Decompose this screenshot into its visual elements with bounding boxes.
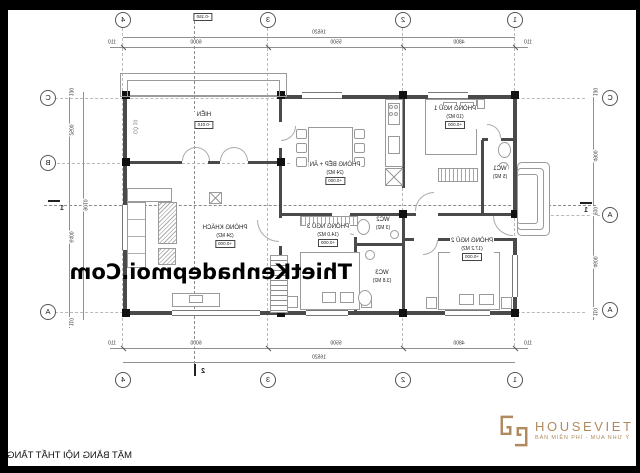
chair [296,143,307,153]
door-arc [415,192,434,211]
section-mark [580,202,592,204]
grid-bubble-col: 1 [507,372,523,388]
room-name: PHÒNG KHÁCH [203,225,248,231]
dim-seg: 130 [68,87,73,97]
column-marker [511,91,519,99]
grid-bubble-col: 2 [395,12,411,28]
sofa [127,188,172,202]
plan-drawing-mirrored: 16520 110 4800 5500 6000 110 110 4800 55… [0,0,640,473]
room-level: -0.010 [195,121,214,129]
column-marker [399,91,407,99]
wall [279,95,282,122]
dim-seg: 110 [592,307,597,317]
wall [501,138,513,141]
floor-plan-sheet: 16520 110 4800 5500 6000 110 110 4800 55… [0,0,640,473]
nightstand [501,297,512,309]
dim-seg: 110 [523,41,533,46]
room-area: (10 M2) [434,114,476,120]
room-name: PHÒNG NGỦ 3 [307,224,349,230]
grid-bubble-col: 4 [115,12,131,28]
section-label: 2 [201,368,205,375]
dim-seg: 6000 [189,342,202,347]
burner [389,105,393,109]
wardrobe [438,168,478,182]
dim-seg: 5500 [329,41,342,46]
nightstand [477,99,485,109]
sofa [127,202,146,268]
grid-bubble-row: C [40,90,56,106]
chair [296,157,307,167]
burner [389,112,393,116]
grid-bubble-col: 1 [507,12,523,28]
room-label-bed2: PHÒNG NGỦ 2 (17.2 M2) +0.000 [450,238,494,261]
room-area: (34 M2) [203,233,248,239]
grid-bubble-row: A [602,207,618,223]
wall [482,138,488,141]
toilet [358,290,372,306]
pillow [459,294,474,305]
dim-line [123,362,515,363]
wall [402,215,405,315]
window [302,92,342,99]
houseviet-logo-icon [498,414,530,448]
houseviet-logo: HOUSEVIET BẢN MIỄN PHÍ - MUA NHƯ Ý [498,414,634,448]
dim-seg: 110 [523,342,533,347]
chair [354,129,365,139]
dim-line [593,88,594,320]
door-arc [423,240,438,255]
room-level: +0.000 [325,177,345,185]
grid-bubble-col: 3 [260,12,276,28]
grid-bubble-col: 4 [115,372,131,388]
chair [354,143,365,153]
column-marker [122,309,130,317]
section-mark [194,364,196,376]
coffee-table [158,202,177,244]
dim-seg: 110 [107,342,117,347]
entry-steps [517,174,538,224]
wash-basin [390,230,399,239]
canopy-outline [127,80,280,97]
window [445,310,490,316]
room-label-living: PHÒNG KHÁCH (34 M2) +0.000 [202,225,249,248]
frame-left [0,0,8,473]
kitchen-sink [388,136,400,154]
room-area: (3.8 M2) [373,278,392,284]
dim-seg: 4800 [452,41,465,46]
window [172,310,260,316]
column-marker [277,158,285,166]
column-marker [399,210,407,218]
dim-seg: 4900 [592,149,597,162]
room-label-hien: HIÊN -0.010 [194,112,215,129]
tv [189,295,203,303]
dim-seg: 5500 [329,342,342,347]
column-marker [122,158,130,166]
room-area: (24 M2) [310,170,361,176]
room-name: HIÊN [197,112,211,118]
room-label-bed1: PHÒNG NGỦ 1 (10 M2) +0.000 [433,106,477,129]
window [428,92,468,99]
room-name: WC3 [375,270,388,276]
dining-table [308,127,353,167]
dim-seg: 6400 [68,230,73,243]
dim-seg: 6000 [189,41,202,46]
houseviet-tagline: BẢN MIỄN PHÍ - MUA NHƯ Ý [535,435,634,442]
frame-bottom [0,466,640,473]
watermark-text: ThietKenhadepmoi.Com [70,260,353,284]
dim-line [110,348,528,349]
room-name: WC1 [493,166,506,172]
room-label-bed3: PHÒNG NGỦ 3 (14.0 M2) +0.000 [306,224,350,247]
wall [481,140,484,216]
fridge [385,168,403,186]
houseviet-brand: HOUSEVIET [535,420,634,434]
room-name: PHÒNG NGỦ 1 [434,106,476,112]
dim-seg: 110 [68,317,73,327]
door-arc [196,147,210,161]
door-arc [493,216,513,236]
room-area: (3 M2) [376,225,390,231]
grid-bubble-row: A [40,304,56,320]
grid-bubble-col: 3 [260,372,276,388]
dim-total-side: 9010 [82,198,87,211]
burner [394,112,398,116]
room-name: PHÒNG BẾP + ĂN [310,162,361,168]
wall [403,238,414,241]
room-name: PHÒNG NGỦ 2 [451,238,493,244]
window [306,310,348,316]
dim-seg: 4800 [452,342,465,347]
room-label-wc3: WC3 (3.8 M2) [372,270,393,284]
burner [394,105,398,109]
room-level: +0.000 [445,121,465,129]
nightstand [287,296,298,308]
small-table [209,192,222,204]
door-arc [234,147,248,161]
grid-bubble-row: B [40,155,56,171]
section-label: 1 [584,207,588,214]
frame-right [636,0,640,473]
room-level: +0.000 [215,240,235,248]
room-label-wc1: WC1 (5 M2) [492,166,508,180]
wall [208,161,220,164]
door-arc [257,220,279,242]
pillow [322,292,336,303]
wash-basin [365,250,375,260]
chair [296,129,307,139]
dim-seg: 910 [592,206,597,216]
toilet [357,219,370,235]
door-arc [182,147,196,161]
nightstand [426,297,437,309]
porch-note: CỎ 10 [132,119,137,135]
pillow [479,294,494,305]
frame-top [0,0,640,10]
wall [356,243,403,246]
dim-seg: 4600 [592,255,597,268]
dim-total-bottom: 16520 [311,356,327,361]
room-area: (5 M2) [493,174,507,180]
dim-line [110,47,528,48]
dim-seg: 130 [592,87,597,97]
dim-line [123,37,515,38]
dim-seg: 2500 [68,123,73,136]
room-label-wc2: WC2 (3 M2) [375,217,391,231]
door-arc [220,147,234,161]
room-level: +0.000 [318,239,338,247]
room-area: (17.2 M2) [451,246,493,252]
wall [248,161,278,164]
room-name: WC2 [376,217,389,223]
grid-bubble-row: C [602,90,618,106]
section-mark [48,200,60,202]
dim-seg: 110 [107,41,117,46]
column-marker [399,309,407,317]
window [512,255,518,297]
room-label-kitchen: PHÒNG BẾP + ĂN (24 M2) +0.000 [309,162,362,185]
pillow [340,292,354,303]
yard-level: -0.150 [194,13,213,21]
door-arc [281,126,296,141]
section-label: 1 [60,205,64,212]
column-marker [511,309,519,317]
room-area: (14.0 M2) [307,232,349,238]
wall [127,161,182,164]
door-arc [487,124,501,138]
dim-total-top: 16520 [311,31,327,36]
grid-bubble-row: A [602,302,618,318]
grid-bubble-col: 2 [395,372,411,388]
sheet-title: MẶT BẰNG NỘI THẤT TẦNG 1 [0,450,132,461]
toilet [498,142,511,158]
room-level: +0.000 [462,253,482,261]
